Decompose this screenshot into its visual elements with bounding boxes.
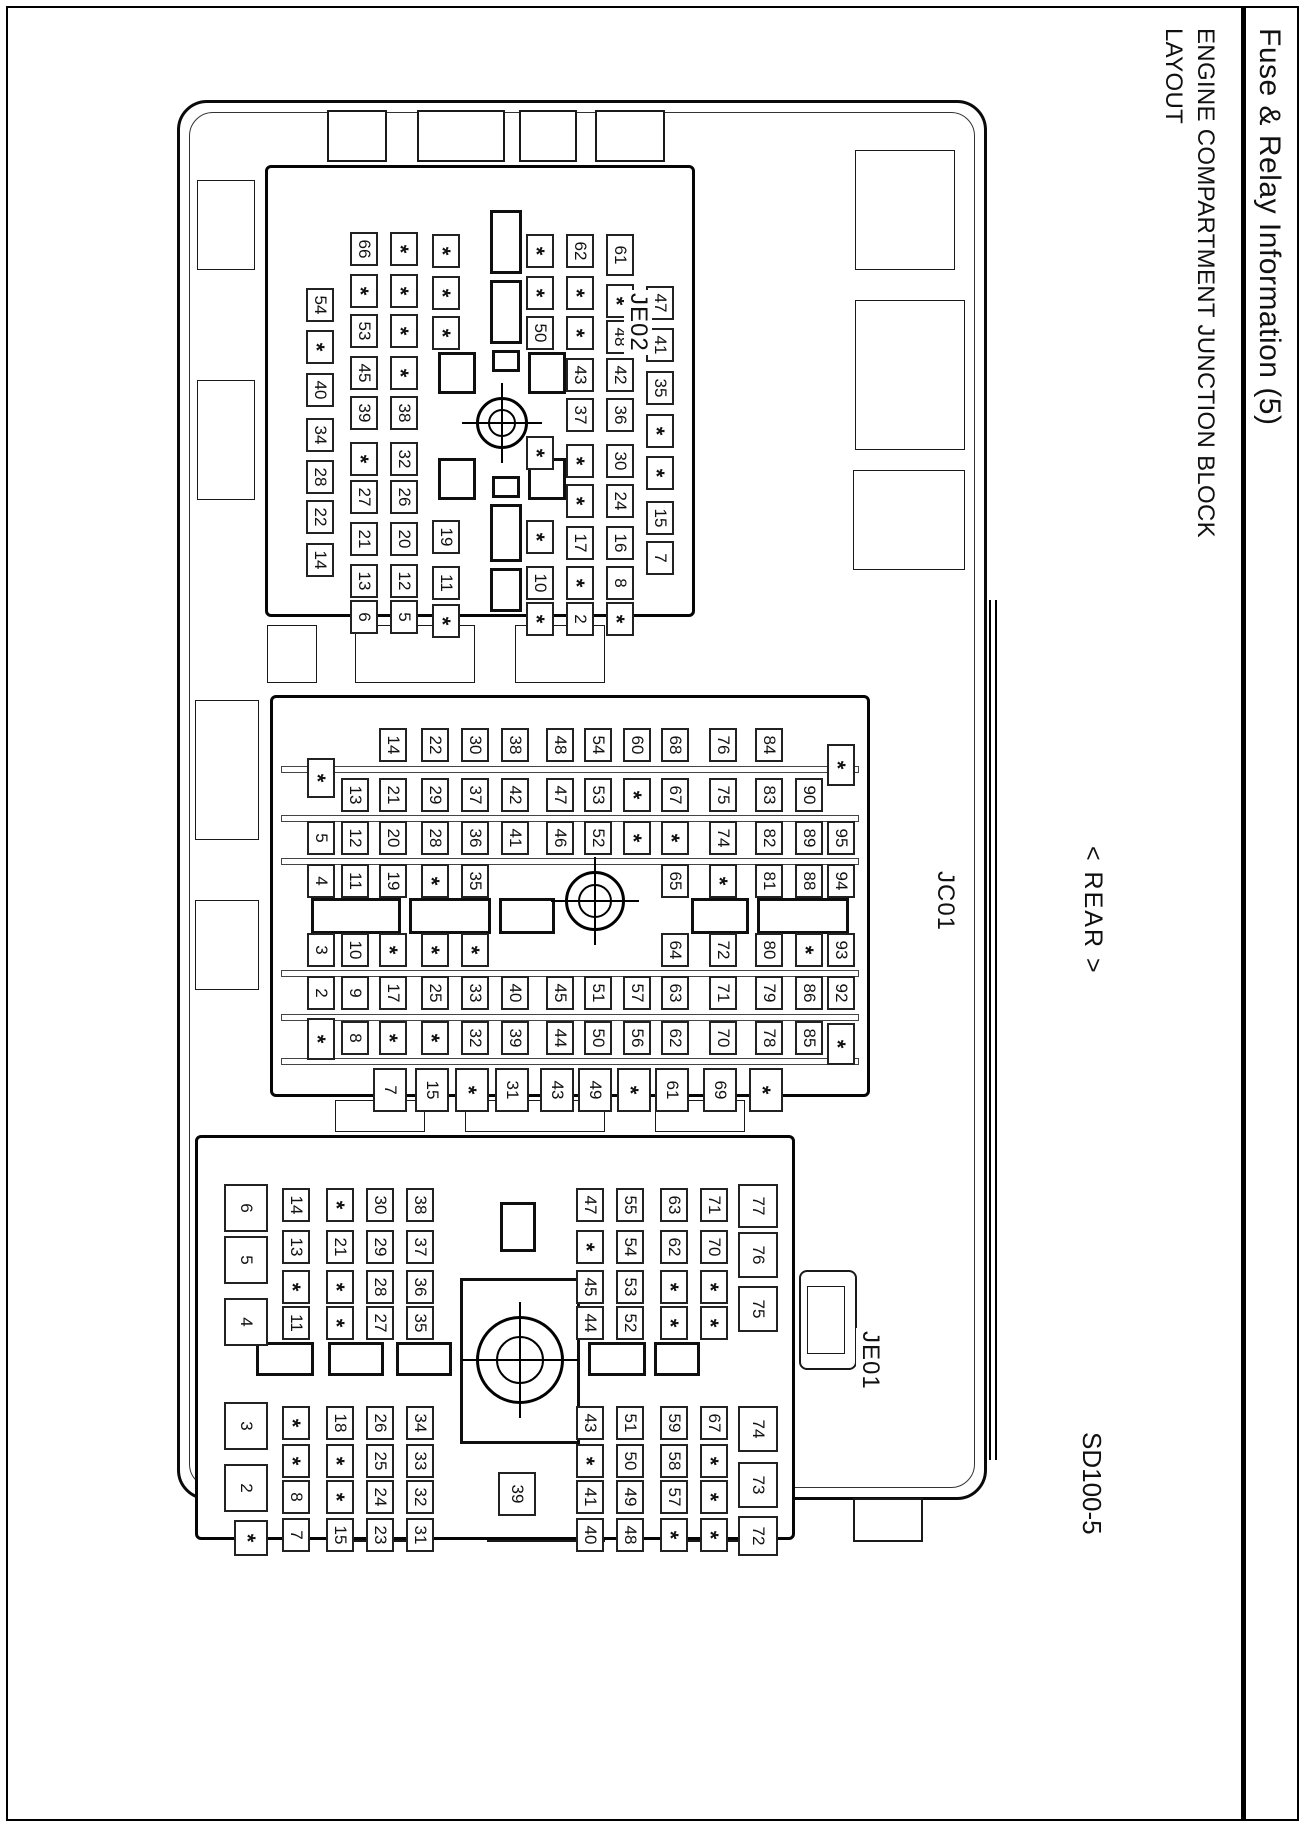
fuse-cell-45: 45 [350,356,378,390]
fuse-cell-41: 41 [576,1480,604,1514]
fuse-cell-31: 31 [406,1518,434,1552]
fuse-cell-62: 62 [566,234,594,268]
fuse-cell-spare: * [566,566,594,600]
fuse-cell-74: 74 [738,1406,778,1452]
fuse-cell-spare: * [307,1018,335,1060]
block-label-je02: JE02 [624,290,652,355]
fuse-cell-spare: * [526,602,554,636]
divider-bar [281,1058,859,1065]
fuse-cell-spare: * [234,1520,268,1556]
fuse-cell-2: 2 [566,602,594,636]
fuse-cell-spare: * [461,933,489,967]
fuse-cell-54: 54 [584,728,612,762]
fuse-cell-65: 65 [661,864,689,898]
fuse-cell-63: 63 [661,976,689,1010]
fuse-cell-94: 94 [827,864,855,898]
fuse-cell-32: 32 [390,442,418,476]
fuse-cell-38: 38 [390,396,418,430]
fuse-cell-42: 42 [501,778,529,812]
fuse-cell-spare: * [390,356,418,390]
fuse-cell-53: 53 [616,1270,644,1304]
fuse-cell-spare: * [700,1306,728,1340]
fuse-cell-39: 39 [350,396,378,430]
fuse-cell-spare: * [526,276,554,310]
fuse-cell-93: 93 [827,933,855,967]
fuse-cell-20: 20 [390,522,418,556]
fuse-cell-17: 17 [566,526,594,560]
fuse-cell-29: 29 [421,778,449,812]
relay-slot [588,1342,646,1376]
relay-slot [438,352,476,394]
fuse-cell-spare: * [432,604,460,638]
fuse-cell-13: 13 [341,778,369,812]
relay-slot [256,1342,314,1376]
fuse-cell-29: 29 [366,1230,394,1264]
fuse-cell-7: 7 [373,1068,407,1112]
fuse-cell-spare: * [566,316,594,350]
fuse-cell-31: 31 [495,1068,529,1112]
fuse-cell-15: 15 [646,501,674,535]
fuse-cell-68: 68 [661,728,689,762]
fuse-cell-spare: * [390,232,418,266]
junction-block-je02: JE02474135**15761*4842363024168*62**4337… [265,165,695,617]
fuse-cell-spare: * [700,1270,728,1304]
fuse-cell-67: 67 [700,1406,728,1440]
fuse-cell-82: 82 [755,821,783,855]
fuse-cell-14: 14 [379,728,407,762]
fuse-cell-spare: * [326,1444,354,1478]
section-heading-line1: ENGINE COMPARTMENT JUNCTION BLOCK [1189,28,1221,538]
fuse-cell-48: 48 [616,1518,644,1552]
bolt-cross-v [462,422,542,424]
fuse-cell-25: 25 [421,976,449,1010]
housing-tab [417,110,505,162]
fuse-cell-84: 84 [755,728,783,762]
fuse-cell-11: 11 [282,1306,310,1340]
fuse-cell-spare: * [526,436,554,470]
fuse-cell-9: 9 [341,976,369,1010]
fuse-cell-21: 21 [350,522,378,556]
fuse-cell-30: 30 [366,1188,394,1222]
fuse-cell-36: 36 [606,398,634,432]
fuse-cell-45: 45 [546,976,574,1010]
fuse-cell-49: 49 [616,1480,644,1514]
fuse-cell-8: 8 [341,1021,369,1055]
fuse-cell-spare: * [749,1068,783,1112]
fuse-cell-64: 64 [661,933,689,967]
fuse-cell-78: 78 [755,1021,783,1055]
fuse-cell-53: 53 [350,314,378,348]
fuse-cell-11: 11 [432,566,460,600]
fuse-cell-spare: * [421,864,449,898]
fuse-cell-11: 11 [341,864,369,898]
fuse-cell-6: 6 [224,1184,268,1232]
fuse-cell-27: 27 [350,480,378,514]
housing-connector [853,470,965,570]
fuse-cell-85: 85 [795,1021,823,1055]
fuse-cell-62: 62 [660,1230,688,1264]
housing-connector [855,300,965,450]
fuse-cell-36: 36 [406,1270,434,1304]
housing-connector [855,150,955,270]
fuse-cell-spare: * [432,316,460,350]
fuse-cell-33: 33 [406,1444,434,1478]
relay-slot [492,476,520,498]
fuse-cell-5: 5 [224,1236,268,1284]
fuse-cell-73: 73 [738,1462,778,1508]
fuse-cell-54: 54 [616,1230,644,1264]
fuse-cell-42: 42 [606,358,634,392]
fuse-cell-77: 77 [738,1184,778,1228]
fuse-cell-41: 41 [501,821,529,855]
fuse-cell-28: 28 [421,821,449,855]
fuse-cell-50: 50 [584,1021,612,1055]
fuse-cell-74: 74 [709,821,737,855]
relay-slot [499,898,555,934]
relay-slot [409,898,491,934]
housing-edge-line [989,600,997,1460]
fuse-cell-spare: * [350,442,378,476]
fuse-cell-38: 38 [501,728,529,762]
fuse-cell-58: 58 [660,1444,688,1478]
relay-slot [528,352,566,394]
fuse-cell-spare: * [623,821,651,855]
fuse-cell-39: 39 [501,1021,529,1055]
junction-block-je01: JE017776757473727170**67***6362**595857*… [195,1135,795,1540]
junction-block-jc01: JC01*95949392*908988*868584838281807978*… [270,695,870,1097]
relay-slot [311,898,401,934]
fuse-cell-39: 39 [498,1472,536,1516]
fuse-cell-86: 86 [795,976,823,1010]
relay-slot [492,350,520,372]
fuse-cell-50: 50 [616,1444,644,1478]
relay-slot [490,504,522,562]
fuse-cell-10: 10 [526,566,554,600]
fuse-cell-19: 19 [379,864,407,898]
rotated-manual-page: Fuse & Relay Information (5) ENGINE COMP… [0,0,1305,1827]
block-label-je01: JE01 [856,1328,884,1393]
fuse-cell-32: 32 [461,1021,489,1055]
housing-tab [853,1498,923,1542]
fuse-cell-79: 79 [755,976,783,1010]
fuse-cell-80: 80 [755,933,783,967]
page-title: Fuse & Relay Information (5) [1252,28,1286,425]
fuse-cell-spare: * [646,414,674,448]
fuse-cell-61: 61 [606,234,634,276]
fuse-cell-spare: * [617,1068,651,1112]
fuse-cell-51: 51 [584,976,612,1010]
fuse-cell-13: 13 [282,1230,310,1264]
fuse-cell-34: 34 [406,1406,434,1440]
fuse-cell-4: 4 [307,864,335,898]
fuse-cell-spare: * [282,1270,310,1304]
fuse-cell-49: 49 [578,1068,612,1112]
fuse-cell-3: 3 [307,933,335,967]
fuse-cell-spare: * [526,234,554,268]
fuse-cell-37: 37 [406,1230,434,1264]
fuse-cell-17: 17 [379,976,407,1010]
fuse-cell-spare: * [827,744,855,786]
fuse-cell-22: 22 [421,728,449,762]
fuse-cell-23: 23 [366,1518,394,1552]
fuse-cell-53: 53 [584,778,612,812]
fuse-cell-69: 69 [703,1068,737,1112]
fuse-cell-81: 81 [755,864,783,898]
fuse-cell-56: 56 [623,1021,651,1055]
fuse-cell-59: 59 [660,1406,688,1440]
fuse-cell-40: 40 [306,373,334,407]
relay-slot [490,568,522,612]
fuse-cell-spare: * [307,758,335,798]
relay-slot [691,898,749,934]
fuse-cell-spare: * [660,1306,688,1340]
fuse-cell-27: 27 [366,1306,394,1340]
fuse-cell-15: 15 [326,1518,354,1552]
page-header: Fuse & Relay Information (5) [1241,8,1297,1819]
fuse-cell-32: 32 [406,1480,434,1514]
fuse-cell-60: 60 [623,728,651,762]
fuse-cell-2: 2 [224,1464,268,1512]
housing-bracket [197,380,255,500]
fuse-cell-spare: * [576,1230,604,1264]
fuse-cell-spare: * [282,1444,310,1478]
fuse-cell-spare: * [421,933,449,967]
fuse-cell-34: 34 [306,418,334,452]
fuse-cell-spare: * [326,1480,354,1514]
fuse-cell-88: 88 [795,864,823,898]
fuse-cell-70: 70 [709,1021,737,1055]
relay-slot [328,1342,384,1376]
fuse-cell-spare: * [379,933,407,967]
fuse-cell-spare: * [379,1021,407,1055]
fuse-cell-spare: * [827,1023,855,1065]
fuse-cell-30: 30 [461,728,489,762]
fuse-cell-spare: * [661,821,689,855]
fuse-cell-spare: * [660,1518,688,1552]
fuse-cell-21: 21 [326,1230,354,1264]
housing-tab [327,110,387,162]
fuse-cell-spare: * [326,1306,354,1340]
fuse-cell-spare: * [795,933,823,967]
fuse-cell-spare: * [700,1518,728,1552]
fuse-cell-spare: * [646,456,674,490]
fuse-cell-18: 18 [326,1406,354,1440]
fuse-cell-spare: * [566,276,594,310]
fuse-cell-8: 8 [282,1480,310,1514]
fuse-cell-3: 3 [224,1402,268,1450]
fuse-cell-70: 70 [700,1230,728,1264]
fuse-cell-spare: * [421,1021,449,1055]
fuse-cell-45: 45 [576,1270,604,1304]
fuse-cell-72: 72 [709,933,737,967]
section-heading: ENGINE COMPARTMENT JUNCTION BLOCK LAYOUT [1157,28,1221,538]
page-code: SD100-5 [1076,1432,1107,1535]
fuse-cell-52: 52 [584,821,612,855]
fuse-cell-44: 44 [576,1306,604,1340]
fuse-cell-43: 43 [576,1406,604,1440]
fuse-cell-12: 12 [341,821,369,855]
fuse-cell-40: 40 [576,1518,604,1552]
fuse-cell-43: 43 [540,1068,574,1112]
fuse-cell-71: 71 [700,1188,728,1222]
fuse-cell-spare: * [306,330,334,364]
fuse-cell-33: 33 [461,976,489,1010]
fuse-cell-50: 50 [526,316,554,350]
relay-slot [757,898,849,934]
relay-slot [490,210,522,274]
fuse-cell-7: 7 [282,1518,310,1552]
fuse-cell-15: 15 [415,1068,449,1112]
fuse-cell-2: 2 [307,976,335,1010]
fuse-cell-66: 66 [350,232,378,266]
fuse-cell-37: 37 [566,398,594,432]
relay-slot [654,1342,700,1376]
section-heading-line2: LAYOUT [1157,28,1189,538]
fuse-cell-4: 4 [224,1298,268,1346]
fuse-cell-14: 14 [306,543,334,577]
fuse-cell-48: 48 [546,728,574,762]
fuse-cell-spare: * [282,1406,310,1440]
fuse-cell-75: 75 [738,1286,778,1332]
fuse-cell-24: 24 [366,1480,394,1514]
fuse-cell-spare: * [526,520,554,554]
fuse-cell-spare: * [566,484,594,518]
fuse-cell-spare: * [326,1188,354,1222]
fuse-cell-63: 63 [660,1188,688,1222]
fuse-cell-57: 57 [660,1480,688,1514]
fuse-cell-spare: * [700,1444,728,1478]
fuse-cell-spare: * [455,1068,489,1112]
fuse-cell-52: 52 [616,1306,644,1340]
fuse-cell-35: 35 [646,371,674,405]
fuse-cell-5: 5 [390,600,418,634]
fuse-cell-10: 10 [341,933,369,967]
fuse-cell-95: 95 [827,821,855,855]
fuse-cell-35: 35 [406,1306,434,1340]
fuse-cell-spare: * [326,1270,354,1304]
fuse-cell-19: 19 [432,520,460,554]
fuse-cell-75: 75 [709,778,737,812]
fuse-cell-5: 5 [307,821,335,855]
fuse-cell-21: 21 [379,778,407,812]
fuse-cell-28: 28 [366,1270,394,1304]
fuse-cell-46: 46 [546,821,574,855]
fuse-cell-spare: * [700,1480,728,1514]
relay-slot [500,1202,536,1252]
fuse-cell-26: 26 [390,480,418,514]
fuse-cell-spare: * [709,864,737,898]
housing-bracket [195,700,259,840]
fuse-cell-25: 25 [366,1444,394,1478]
fuse-cell-24: 24 [606,484,634,518]
fuse-cell-26: 26 [366,1406,394,1440]
fuse-cell-47: 47 [546,778,574,812]
inter-block-connector [267,625,317,683]
relay-slot [438,458,476,500]
divider-bar [281,1014,859,1021]
housing-tab [519,110,577,162]
fuse-cell-28: 28 [306,460,334,494]
fuse-cell-62: 62 [661,1021,689,1055]
relay-slot [490,280,522,344]
fuse-cell-72: 72 [738,1516,778,1556]
fuse-cell-83: 83 [755,778,783,812]
fuse-cell-spare: * [576,1444,604,1478]
fuse-cell-30: 30 [606,444,634,478]
block-label-jc01: JC01 [931,868,959,934]
housing-tab [595,110,665,162]
fuse-cell-57: 57 [623,976,651,1010]
housing-bump-inner [807,1286,845,1354]
fuse-cell-12: 12 [390,564,418,598]
bolt-cross-v [462,1359,578,1361]
fuse-cell-76: 76 [709,728,737,762]
fuse-cell-54: 54 [306,288,334,322]
fuse-cell-13: 13 [350,564,378,598]
rear-orientation-label: < REAR > [1078,846,1107,975]
bolt-cross-v [551,900,639,902]
fuse-cell-spare: * [566,444,594,478]
fuse-cell-71: 71 [709,976,737,1010]
fuse-cell-spare: * [350,274,378,308]
fuse-cell-37: 37 [461,778,489,812]
fuse-cell-61: 61 [655,1068,689,1112]
relay-slot [396,1342,452,1376]
fuse-cell-40: 40 [501,976,529,1010]
divider-bar [281,766,859,773]
fuse-cell-7: 7 [646,541,674,575]
fuse-cell-spare: * [432,276,460,310]
fuse-cell-35: 35 [461,864,489,898]
housing-bracket [197,180,255,270]
fuse-cell-6: 6 [350,600,378,634]
fuse-cell-14: 14 [282,1188,310,1222]
fuse-cell-44: 44 [546,1021,574,1055]
fuse-cell-67: 67 [661,778,689,812]
fuse-cell-spare: * [390,314,418,348]
fuse-cell-92: 92 [827,976,855,1010]
fuse-cell-spare: * [432,234,460,268]
fuse-cell-spare: * [660,1270,688,1304]
fuse-cell-16: 16 [606,526,634,560]
fuse-cell-spare: * [623,778,651,812]
fuse-cell-89: 89 [795,821,823,855]
fuse-cell-spare: * [390,274,418,308]
fuse-cell-20: 20 [379,821,407,855]
fuse-cell-22: 22 [306,500,334,534]
fuse-cell-55: 55 [616,1188,644,1222]
fuse-cell-90: 90 [795,778,823,812]
fuse-cell-43: 43 [566,358,594,392]
fuse-cell-36: 36 [461,821,489,855]
fuse-cell-8: 8 [606,566,634,600]
housing-bracket [195,900,259,990]
fuse-cell-76: 76 [738,1232,778,1278]
fuse-cell-47: 47 [576,1188,604,1222]
fuse-cell-51: 51 [616,1406,644,1440]
fuse-cell-spare: * [606,602,634,636]
fuse-cell-38: 38 [406,1188,434,1222]
